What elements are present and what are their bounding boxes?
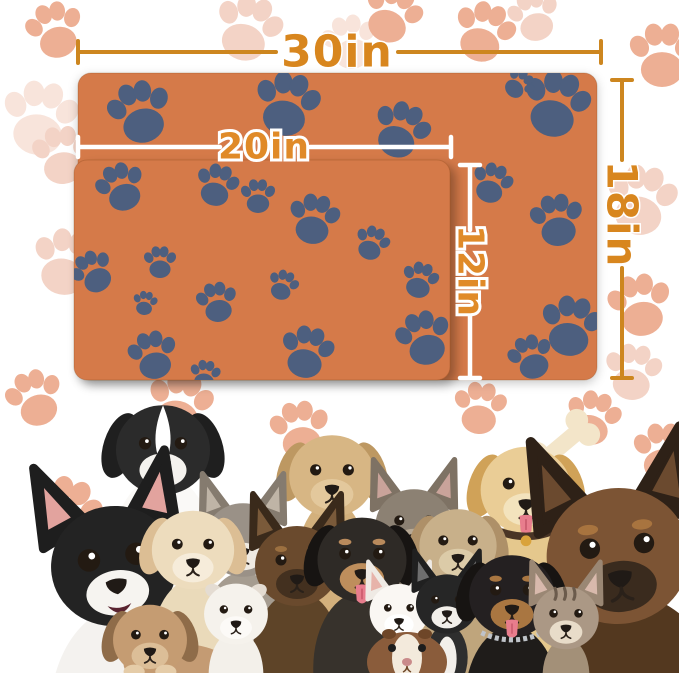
dimension-label-20in: 20in xyxy=(218,127,310,168)
product-image: 30in 18in 20in 12in xyxy=(0,0,679,673)
small-mat-20x12 xyxy=(62,155,460,393)
white-fold-kitten xyxy=(203,581,269,673)
dimension-label-18in: 18in xyxy=(598,161,647,268)
dimension-label-12in: 12in xyxy=(450,225,491,317)
size-comparison-diagram: 30in 18in 20in 12in xyxy=(0,0,679,673)
dimension-label-30in: 30in xyxy=(281,27,393,78)
